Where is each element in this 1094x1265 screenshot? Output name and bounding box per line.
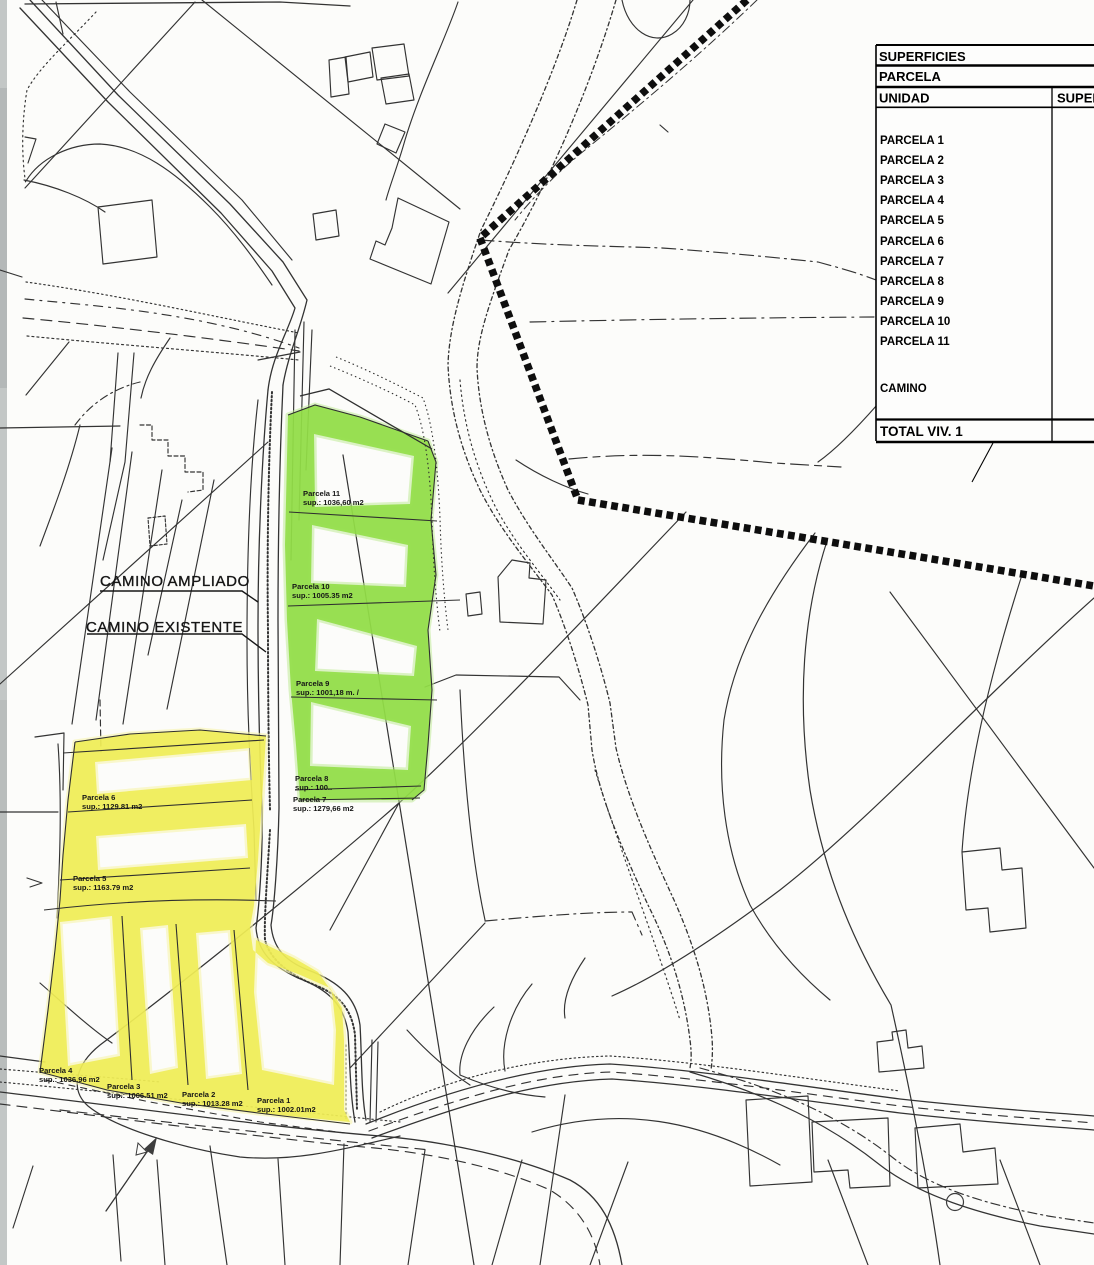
svg-text:PARCELA 9: PARCELA 9 xyxy=(880,296,944,308)
svg-text:PARCELA 5: PARCELA 5 xyxy=(880,215,945,227)
svg-text:PARCELA 7: PARCELA 7 xyxy=(880,256,944,268)
svg-text:Parcela 11: Parcela 11 xyxy=(303,489,341,498)
svg-text:PARCELA 8: PARCELA 8 xyxy=(880,276,945,288)
svg-text:CAMINO AMPLIADO: CAMINO AMPLIADO xyxy=(100,573,250,590)
svg-text:PARCELA 2: PARCELA 2 xyxy=(880,155,944,167)
svg-text:CAMINO: CAMINO xyxy=(880,383,927,395)
svg-text:Parcela 8: Parcela 8 xyxy=(295,774,328,783)
svg-text:SUPERFICIE: SUPERFICIE xyxy=(1057,91,1094,106)
svg-text:sup.: 100..: sup.: 100.. xyxy=(295,783,332,792)
svg-text:sup.: 1006.51 m2: sup.: 1006.51 m2 xyxy=(107,1091,168,1100)
svg-text:Parcela 1: Parcela 1 xyxy=(257,1096,291,1105)
svg-text:sup.: 1036.96 m2: sup.: 1036.96 m2 xyxy=(39,1075,100,1084)
svg-text:Parcela 4: Parcela 4 xyxy=(39,1066,73,1075)
svg-text:sup.: 1036,60 m2: sup.: 1036,60 m2 xyxy=(303,498,364,507)
svg-text:PARCELA 3: PARCELA 3 xyxy=(880,175,944,187)
svg-text:sup.: 1129.81 m2: sup.: 1129.81 m2 xyxy=(82,802,142,811)
svg-text:UNIDAD: UNIDAD xyxy=(879,91,930,106)
svg-text:Parcela 5: Parcela 5 xyxy=(73,874,107,883)
svg-text:PARCELA 1: PARCELA 1 xyxy=(880,135,945,147)
svg-text:sup.: 1279,66 m2: sup.: 1279,66 m2 xyxy=(293,804,354,813)
svg-text:PARCELA 6: PARCELA 6 xyxy=(880,236,944,248)
svg-text:Parcela 7: Parcela 7 xyxy=(293,795,326,804)
svg-text:PARCELA 11: PARCELA 11 xyxy=(880,336,950,348)
svg-text:sup.: 1163.79 m2: sup.: 1163.79 m2 xyxy=(73,883,133,892)
svg-text:Parcela 3: Parcela 3 xyxy=(107,1082,140,1091)
svg-text:PARCELA 4: PARCELA 4 xyxy=(880,195,945,207)
svg-text:SUPERFICIES: SUPERFICIES xyxy=(879,49,966,64)
svg-text:Parcela 9: Parcela 9 xyxy=(296,679,329,688)
svg-text:sup.: 1005.35 m2: sup.: 1005.35 m2 xyxy=(292,591,353,600)
svg-text:sup.: 1001,18 m. /: sup.: 1001,18 m. / xyxy=(296,688,360,697)
svg-text:Parcela 2: Parcela 2 xyxy=(182,1090,215,1099)
svg-text:Parcela 10: Parcela 10 xyxy=(292,582,330,591)
svg-text:Parcela 6: Parcela 6 xyxy=(82,793,115,802)
svg-text:TOTAL VIV. 1: TOTAL VIV. 1 xyxy=(880,424,963,439)
svg-text:PARCELA: PARCELA xyxy=(879,69,941,84)
svg-text:sup.: 1002.01m2: sup.: 1002.01m2 xyxy=(257,1105,316,1114)
svg-text:sup.: 1013.28 m2: sup.: 1013.28 m2 xyxy=(182,1099,243,1108)
svg-text:PARCELA 10: PARCELA 10 xyxy=(880,316,950,328)
